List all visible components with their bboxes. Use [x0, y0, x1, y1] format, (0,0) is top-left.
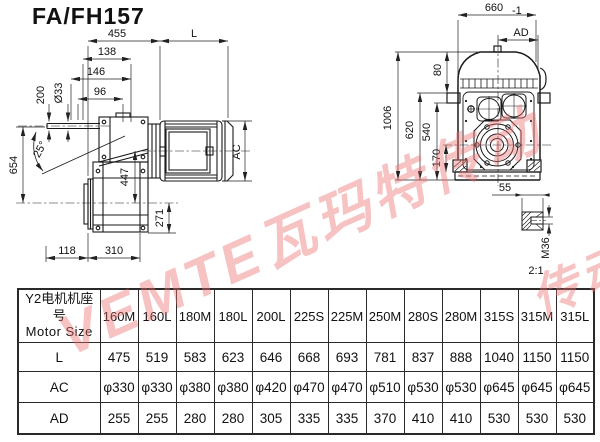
front-view-drawing	[443, 42, 552, 230]
side-view-drawing	[16, 113, 252, 232]
table-cell: φ420	[252, 372, 290, 403]
mounting-tabs-feet	[447, 93, 550, 180]
shaft-end-detail	[522, 212, 546, 230]
front-view-dimensions	[395, 15, 553, 236]
table-cell: 646	[252, 343, 290, 372]
table-cell: 335	[328, 403, 366, 435]
column-header: 315M	[518, 289, 556, 343]
table-cell: 255	[100, 403, 138, 435]
dim-118-label: 118	[58, 245, 76, 257]
table-cell: 255	[138, 403, 176, 435]
table-cell: 583	[176, 343, 214, 372]
dim-1006-label: 1006	[382, 106, 394, 130]
table-cell: 475	[100, 343, 138, 372]
table-cell: φ470	[290, 372, 328, 403]
detail-scale-label: 2:1	[528, 265, 543, 277]
page: FA/FH157	[0, 0, 600, 442]
row-label: L	[18, 343, 100, 372]
table-cell: 837	[404, 343, 442, 372]
dim-455-label: 455	[108, 28, 126, 40]
table-cell: φ530	[404, 372, 442, 403]
dim-80-label: 80	[432, 64, 444, 76]
table-cell: φ330	[138, 372, 176, 403]
table-cell: 693	[328, 343, 366, 372]
table-cell: φ645	[556, 372, 594, 403]
table-cell: 410	[404, 403, 442, 435]
dim-660-label: 660	[485, 2, 503, 14]
dim-AD-label: AD	[513, 27, 528, 39]
dim-310-label: 310	[105, 245, 123, 257]
column-header: 225M	[328, 289, 366, 343]
dim-L-label: L	[191, 28, 197, 40]
column-header: 250M	[366, 289, 404, 343]
column-header: 160L	[138, 289, 176, 343]
dim-dia33-label: Ø33	[53, 83, 65, 104]
table-row-AD: AD 255 255 280 280 305 335 335 370 410 4…	[18, 403, 594, 435]
table-cell: φ530	[442, 372, 480, 403]
column-header: 180M	[176, 289, 214, 343]
motor-dimension-table: Y2电机机座号 Motor Size 160M 160L 180M 180L 2…	[17, 288, 595, 435]
dim-654-label: 654	[8, 156, 20, 174]
table-cell: 335	[290, 403, 328, 435]
dim-146-label: 146	[87, 66, 105, 78]
dim-620-label: 620	[404, 121, 416, 139]
row-label: AD	[18, 403, 100, 435]
table-cell: φ645	[518, 372, 556, 403]
header-chinese: Y2电机机座号	[19, 291, 100, 325]
dim-540-label: 540	[421, 123, 433, 141]
table-cell: φ330	[100, 372, 138, 403]
table-cell: 519	[138, 343, 176, 372]
table-cell: 280	[214, 403, 252, 435]
dim-170-label: 170	[431, 149, 443, 167]
column-header: 315S	[480, 289, 518, 343]
table-cell: 888	[442, 343, 480, 372]
side-view-labels: 455 L 138 146 96 Ø33 200 25° 654 447 271…	[8, 28, 243, 257]
dim-AC-label: AC	[231, 144, 243, 159]
table-cell: φ645	[480, 372, 518, 403]
table-header-row: Y2电机机座号 Motor Size 160M 160L 180M 180L 2…	[18, 289, 594, 343]
dim-96-label: 96	[94, 86, 106, 98]
dim-200-label: 200	[35, 86, 47, 104]
column-header: 180L	[214, 289, 252, 343]
front-view-labels: 660 -1 AD 80 1006 620 540 170 55 M36 2:1	[382, 2, 552, 277]
table-cell: 668	[290, 343, 328, 372]
table-row-AC: AC φ330 φ330 φ380 φ380 φ420 φ470 φ470 φ5…	[18, 372, 594, 403]
table-cell: 530	[518, 403, 556, 435]
table-cell: φ380	[214, 372, 252, 403]
table-cell: φ510	[366, 372, 404, 403]
dim-M36-label: M36	[540, 237, 552, 258]
table-row-L: L 475 519 583 623 646 668 693 781 837 88…	[18, 343, 594, 372]
output-hub	[84, 179, 93, 229]
dim-660-tolerance: -1	[512, 5, 522, 17]
table-cell: 1040	[480, 343, 518, 372]
table-cell: 1150	[556, 343, 594, 372]
table-cell: 530	[556, 403, 594, 435]
table-cell: 410	[442, 403, 480, 435]
dim-271-label: 271	[154, 209, 166, 227]
motor-size-header: Y2电机机座号 Motor Size	[18, 289, 100, 343]
table-cell: 280	[176, 403, 214, 435]
table-cell: φ470	[328, 372, 366, 403]
column-header: 160M	[100, 289, 138, 343]
table-cell: 370	[366, 403, 404, 435]
header-english: Motor Size	[19, 324, 100, 341]
table-cell: 781	[366, 343, 404, 372]
table-cell: 305	[252, 403, 290, 435]
column-header: 280M	[442, 289, 480, 343]
column-header: 225S	[290, 289, 328, 343]
table-cell: 623	[214, 343, 252, 372]
column-header: 315L	[556, 289, 594, 343]
column-header: 200L	[252, 289, 290, 343]
row-label: AC	[18, 372, 100, 403]
dim-138-label: 138	[98, 46, 116, 58]
table-cell: 1150	[518, 343, 556, 372]
table-cell: 530	[480, 403, 518, 435]
column-header: 280S	[404, 289, 442, 343]
technical-drawing: 455 L 138 146 96 Ø33 200 25° 654 447 271…	[0, 0, 600, 290]
table-cell: φ380	[176, 372, 214, 403]
angle-indicator	[34, 132, 125, 174]
bearing-bosses	[476, 93, 527, 122]
dim-447-label: 447	[119, 168, 131, 186]
dim-55-label: 55	[499, 182, 511, 194]
